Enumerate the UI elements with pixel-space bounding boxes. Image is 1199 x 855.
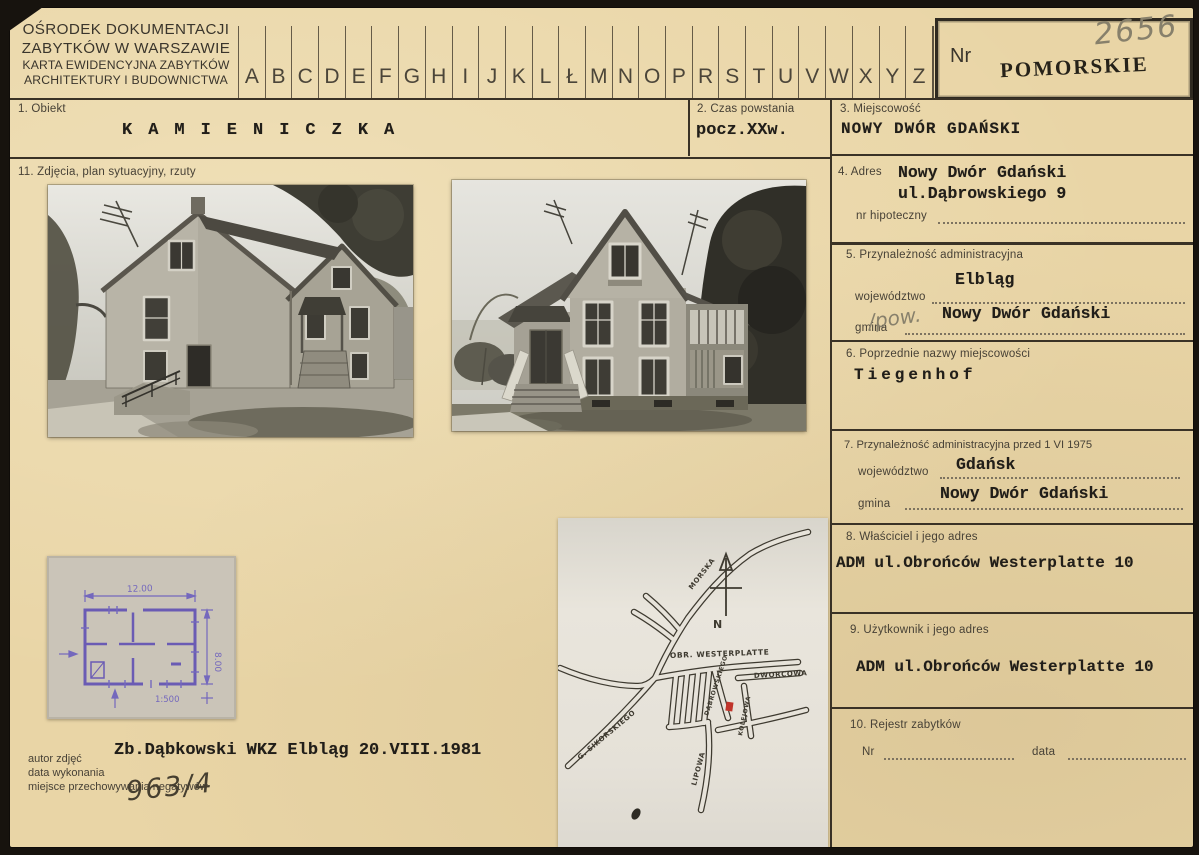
alphabet-letter-G: G [398, 26, 425, 98]
institution-line: KARTA EWIDENCYJNA ZABYTKÓW [14, 58, 238, 73]
row1-rule-right [830, 154, 1193, 156]
row1-rule-left [10, 157, 830, 159]
field-wlasciciel-value: ADM ul.Obrońców Westerplatte 10 [836, 554, 1134, 572]
field-admin1975-woj-label: województwo [858, 466, 929, 478]
alphabet-strip: ABCDEFGHIJKLŁMNOPRSTUVWXYZ [238, 26, 934, 98]
field-admin-woj-value: Elbląg [955, 270, 1014, 289]
alphabet-letter-V: V [798, 26, 825, 98]
section-rule [830, 523, 1193, 525]
institution-line: ARCHITEKTURY I BUDOWNICTWA [14, 73, 238, 88]
record-card: OŚRODEK DOKUMENTACJI ZABYTKÓW W WARSZAWI… [10, 8, 1193, 847]
alphabet-letter-Z: Z [905, 26, 932, 98]
field-admin-gmina-note-handwritten: /pow. [867, 302, 923, 333]
right-column-divider [830, 98, 832, 847]
alphabet-letter-P: P [665, 26, 692, 98]
section-rule [830, 242, 1193, 245]
field-rejestr-nr-label: Nr [862, 746, 875, 758]
section-rule [830, 707, 1193, 709]
floor-plan-blueprint: 12.00 8.00 1:500 [47, 556, 236, 719]
alphabet-letter-L: L [532, 26, 559, 98]
alphabet-letter-X: X [852, 26, 879, 98]
field-obiekt-value: KAMIENICZKA [122, 121, 410, 140]
field-admin1975-gmina-value: Nowy Dwór Gdański [940, 484, 1108, 503]
blank-line [938, 222, 1185, 224]
field-adres-label: 4. Adres [838, 166, 882, 178]
site-map: N MORSKA OBR. WESTERPLATTE DĄBROWSKIEGO … [558, 518, 828, 847]
alphabet-letter-W: W [825, 26, 852, 98]
alphabet-letter-I: I [452, 26, 479, 98]
blank-line [940, 477, 1180, 479]
header-rule [10, 98, 1193, 100]
field-adres-line1: Nowy Dwór Gdański [898, 163, 1066, 182]
field-adres-line2: ul.Dąbrowskiego 9 [898, 184, 1066, 203]
field-uzytkownik-label: 9. Użytkownik i jego adres [850, 624, 989, 636]
alphabet-letter-J: J [478, 26, 505, 98]
field-rejestr-data-label: data [1032, 746, 1055, 758]
field-miejscowosc-label: 3. Miejscowość [840, 103, 921, 115]
field-uzytkownik-value: ADM ul.Obrońców Westerplatte 10 [856, 658, 1154, 676]
section-rule [830, 429, 1193, 431]
alphabet-letter-D: D [318, 26, 345, 98]
map-north-label: N [713, 618, 723, 631]
field-rejestr-label: 10. Rejestr zabytków [850, 719, 961, 731]
photo-house-corner-view [48, 185, 413, 437]
ground [48, 380, 413, 437]
alphabet-letter-Ł: Ł [558, 26, 585, 98]
alphabet-letter-B: B [265, 26, 292, 98]
section-rule [830, 340, 1193, 342]
divider [688, 98, 690, 156]
alphabet-letter-H: H [425, 26, 452, 98]
field-poprzednie-label: 6. Poprzednie nazwy miejscowości [846, 348, 1030, 360]
alphabet-letter-R: R [692, 26, 719, 98]
institution-line: ZABYTKÓW W WARSZAWIE [14, 39, 238, 58]
field-admin1975-woj-value: Gdańsk [956, 455, 1015, 474]
field-zdjecia-label: 11. Zdjęcia, plan sytuacyjny, rzuty [18, 166, 196, 178]
plan-width-dimension: 12.00 [127, 584, 153, 595]
alphabet-letter-N: N [612, 26, 639, 98]
field-wlasciciel-label: 8. Właściciel i jego adres [846, 531, 978, 543]
alphabet-letter-U: U [772, 26, 799, 98]
scanned-heritage-card: { "colors": { "paper": "#e9d5a6", "backd… [0, 0, 1199, 855]
field-czas-label: 2. Czas powstania [697, 103, 794, 115]
blank-line [905, 333, 1185, 335]
photo-house-front-illustration [452, 180, 806, 431]
site-map-drawing: N MORSKA OBR. WESTERPLATTE DĄBROWSKIEGO … [558, 518, 828, 847]
institution-block: OŚRODEK DOKUMENTACJI ZABYTKÓW W WARSZAWI… [14, 20, 238, 88]
alphabet-letter-Y: Y [879, 26, 906, 98]
alphabet-letter-F: F [371, 26, 398, 98]
plan-scale: 1:500 [155, 695, 180, 705]
alphabet-letter-O: O [638, 26, 665, 98]
blank-line [905, 508, 1183, 510]
field-admin-label: 5. Przynależność administracyjna [846, 249, 1023, 261]
field-poprzednie-value: Tiegenhof [854, 366, 976, 384]
card-number-box: Nr POMORSKIE 2656 [935, 18, 1193, 100]
field-obiekt-label: 1. Obiekt [18, 103, 66, 115]
section-rule [830, 612, 1193, 614]
floor-plan-drawing: 12.00 8.00 1:500 [47, 556, 236, 719]
blank-line [884, 758, 1014, 760]
alphabet-letter-T: T [745, 26, 772, 98]
photo-house-corner-illustration [48, 185, 413, 437]
field-admin-gmina-value: Nowy Dwór Gdański [942, 304, 1110, 323]
alphabet-letter-M: M [585, 26, 612, 98]
institution-line: OŚRODEK DOKUMENTACJI [14, 20, 238, 39]
field-admin1975-label: 7. Przynależność administracyjna przed 1… [844, 439, 1092, 451]
footer-typed-credit: Zb.Dąbkowski WKZ Elbląg 20.VIII.1981 [114, 741, 481, 760]
field-miejscowosc-value: NOWY DWÓR GDAŃSKI [841, 120, 1021, 138]
field-admin-woj-label: województwo [855, 291, 926, 303]
alphabet-letter-A: A [238, 26, 265, 98]
field-hipoteczny-label: nr hipoteczny [856, 210, 927, 222]
card-number-handwritten: 2656 [1092, 9, 1180, 53]
plan-height-dimension: 8.00 [212, 652, 222, 672]
field-admin1975-gmina-label: gmina [858, 498, 890, 510]
alphabet-letter-C: C [291, 26, 318, 98]
alphabet-letter-K: K [505, 26, 532, 98]
photo-house-front-view [452, 180, 806, 431]
map-building-marker [725, 702, 733, 712]
alphabet-letter-E: E [345, 26, 372, 98]
field-czas-value: pocz.XXw. [696, 121, 788, 140]
nr-label: Nr [950, 45, 971, 68]
alphabet-letter-S: S [718, 26, 745, 98]
region-stamp: POMORSKIE [1000, 52, 1150, 83]
blank-line [1068, 758, 1186, 760]
